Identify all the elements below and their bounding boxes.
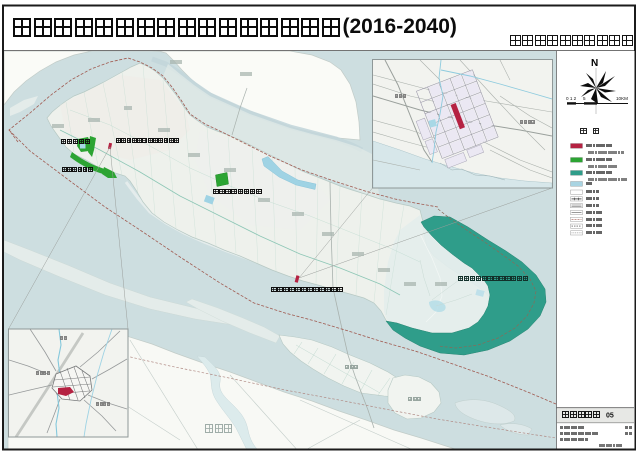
svg-text:0 1 2: 0 1 2 bbox=[566, 96, 577, 101]
svg-text:5: 5 bbox=[583, 96, 586, 101]
svg-text:N: N bbox=[591, 58, 598, 69]
svg-text:10KM: 10KM bbox=[616, 96, 628, 101]
svg-text:05: 05 bbox=[606, 413, 614, 420]
